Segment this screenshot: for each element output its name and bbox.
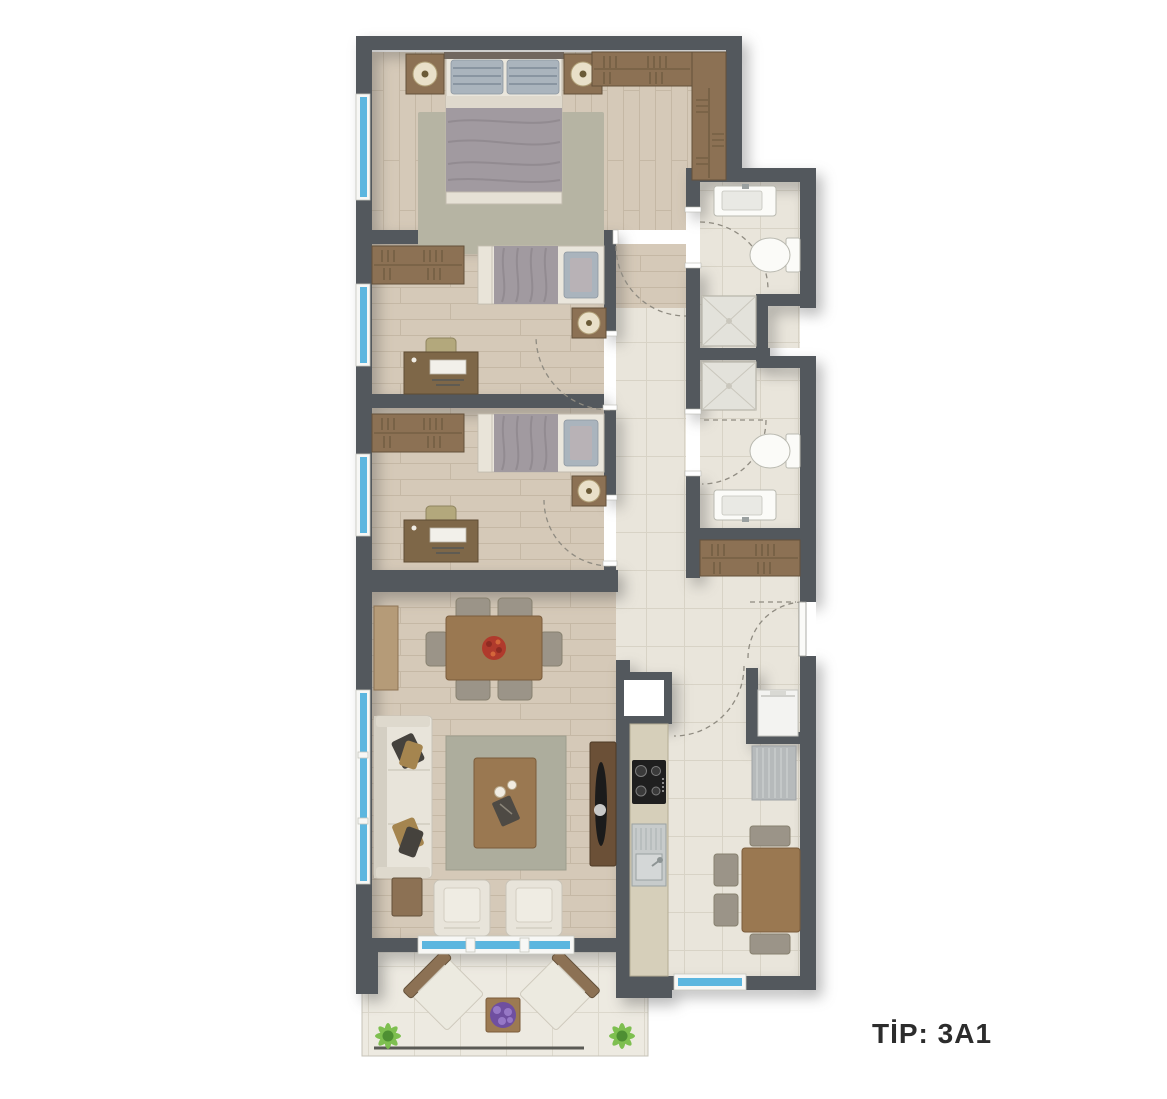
cup-icon: [508, 781, 517, 790]
console-icon: [374, 606, 398, 690]
door-jamb: [685, 471, 701, 476]
wardrobe-icon: [372, 414, 464, 452]
plant-icon: [609, 1023, 635, 1049]
window-bedroom2: [356, 284, 370, 366]
plant-icon: [375, 1023, 401, 1049]
tv-unit-icon: [590, 742, 616, 866]
window-kitchen: [674, 974, 746, 990]
shower-icon: [702, 296, 756, 346]
double-bed-icon: [444, 52, 564, 204]
balcony-table-icon: [486, 998, 520, 1032]
shower-icon: [702, 362, 756, 410]
door-jamb: [685, 207, 701, 212]
door-jamb: [685, 409, 701, 414]
laptop-icon: [430, 360, 466, 374]
fridge-icon: [752, 746, 796, 800]
sink-icon: [714, 490, 776, 522]
side-table-icon: [392, 878, 422, 916]
toilet-icon: [750, 434, 800, 468]
single-bed-icon: [478, 246, 604, 304]
armchair-icon: [506, 880, 562, 936]
window-bedroom3: [356, 454, 370, 536]
nightstand-icon: [572, 308, 606, 338]
flower-centerpiece-icon: [482, 636, 506, 660]
laptop-icon: [430, 528, 466, 542]
coffee-table-icon: [474, 758, 536, 848]
door-jamb: [603, 561, 617, 566]
corridor-wood-floor: [616, 244, 686, 308]
floor-plan-drawing: [0, 0, 1167, 1099]
hall-floor: [616, 308, 686, 576]
entry-hall-floor: [616, 576, 800, 660]
entry-door-leaf: [799, 602, 806, 656]
door-jamb: [603, 405, 617, 410]
window-living: [356, 690, 370, 884]
window-master: [356, 94, 370, 200]
floor-plan-page: TİP: 3A1: [0, 0, 1167, 1099]
armchair-icon: [434, 880, 490, 936]
nightstand-left-icon: [406, 54, 444, 94]
appliance-icon: [758, 690, 798, 736]
kitchen-sink-icon: [632, 824, 666, 886]
sink-icon: [714, 184, 776, 216]
nightstand-icon: [572, 476, 606, 506]
tv-icon: [595, 762, 607, 846]
toilet-icon: [750, 238, 800, 272]
door-jamb: [613, 230, 618, 244]
cooktop-icon: [632, 760, 666, 804]
wardrobe-icon: [372, 246, 464, 284]
shaft-void: [624, 680, 664, 716]
cup-icon: [495, 787, 506, 798]
door-jamb: [685, 263, 701, 268]
balcony-sliding-door: [418, 936, 574, 954]
plan-type-label: TİP: 3A1: [872, 1018, 992, 1050]
sofa-icon: [374, 716, 432, 878]
single-bed-icon: [478, 414, 604, 472]
hall-closet-icon: [700, 540, 800, 576]
